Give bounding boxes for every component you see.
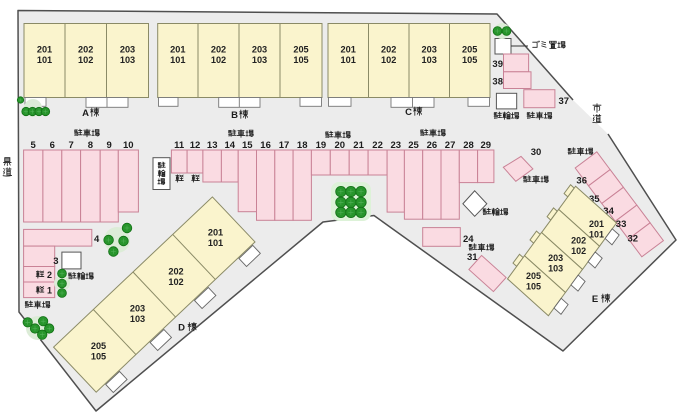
svg-text:202102: 202102 xyxy=(78,45,93,66)
svg-text:D: D xyxy=(178,323,185,334)
svg-text:28: 28 xyxy=(463,140,474,151)
svg-text:39: 39 xyxy=(492,59,503,70)
svg-text:201101: 201101 xyxy=(37,45,52,66)
svg-text:6: 6 xyxy=(50,140,55,151)
svg-text:36: 36 xyxy=(576,176,587,187)
svg-text:11: 11 xyxy=(174,140,185,151)
svg-text:18: 18 xyxy=(297,140,308,151)
svg-text:202102: 202102 xyxy=(381,45,396,66)
svg-text:201101: 201101 xyxy=(341,45,356,66)
svg-text:202102: 202102 xyxy=(168,267,183,288)
svg-text:29: 29 xyxy=(481,140,492,151)
svg-text:B: B xyxy=(231,110,238,121)
svg-text:7: 7 xyxy=(69,140,74,151)
svg-text:10: 10 xyxy=(123,140,134,151)
svg-text:201101: 201101 xyxy=(170,45,185,66)
svg-text:38: 38 xyxy=(492,77,503,88)
svg-text:33: 33 xyxy=(616,219,627,230)
svg-text:24: 24 xyxy=(463,234,474,245)
svg-text:12: 12 xyxy=(190,140,201,151)
svg-text:5: 5 xyxy=(31,140,37,151)
svg-text:25: 25 xyxy=(408,140,419,151)
svg-text:17: 17 xyxy=(279,140,290,151)
svg-text:202102: 202102 xyxy=(571,236,586,256)
svg-text:9: 9 xyxy=(107,140,112,151)
svg-text:1: 1 xyxy=(47,286,52,296)
svg-text:21: 21 xyxy=(353,140,364,151)
svg-text:205105: 205105 xyxy=(293,45,308,66)
svg-text:C: C xyxy=(405,107,412,118)
svg-text:22: 22 xyxy=(372,140,383,151)
svg-text:16: 16 xyxy=(260,140,271,151)
svg-text:203103: 203103 xyxy=(120,45,135,66)
svg-text:203103: 203103 xyxy=(422,45,437,66)
svg-text:14: 14 xyxy=(225,140,236,151)
svg-text:37: 37 xyxy=(559,96,570,107)
svg-text:205105: 205105 xyxy=(462,45,477,66)
svg-text:203103: 203103 xyxy=(548,253,563,273)
svg-text:205105: 205105 xyxy=(526,271,541,291)
svg-text:20: 20 xyxy=(335,140,346,151)
svg-text:203103: 203103 xyxy=(130,304,145,325)
svg-text:26: 26 xyxy=(427,140,438,151)
svg-text:205105: 205105 xyxy=(91,341,106,362)
svg-text:201101: 201101 xyxy=(208,228,223,249)
svg-text:E: E xyxy=(592,294,598,305)
svg-text:203103: 203103 xyxy=(252,45,267,66)
svg-text:23: 23 xyxy=(391,140,402,151)
svg-text:2: 2 xyxy=(47,270,52,280)
svg-text:A: A xyxy=(82,108,89,119)
svg-text:30: 30 xyxy=(531,147,542,158)
svg-text:19: 19 xyxy=(316,140,327,151)
svg-text:202102: 202102 xyxy=(211,45,226,66)
svg-text:4: 4 xyxy=(94,234,100,245)
svg-text:32: 32 xyxy=(628,234,639,245)
svg-text:13: 13 xyxy=(207,140,218,151)
svg-text:8: 8 xyxy=(88,140,93,151)
svg-text:201101: 201101 xyxy=(589,219,604,239)
svg-text:15: 15 xyxy=(242,140,253,151)
svg-text:3: 3 xyxy=(53,256,58,267)
svg-text:27: 27 xyxy=(445,140,456,151)
